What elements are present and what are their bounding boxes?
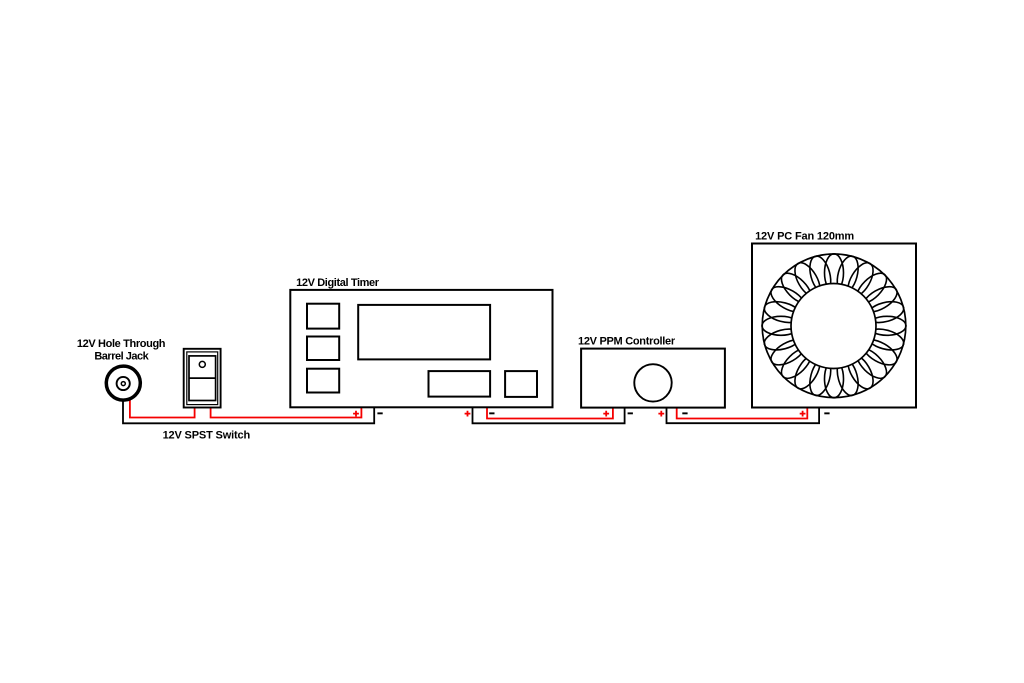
svg-text:12V PC Fan 120mm: 12V PC Fan 120mm [755, 230, 854, 242]
svg-text:12V Digital Timer: 12V Digital Timer [296, 277, 380, 289]
svg-text:12V Hole Through: 12V Hole Through [77, 338, 166, 350]
svg-text:12V PPM Controller: 12V PPM Controller [578, 336, 676, 348]
svg-text:12V SPST Switch: 12V SPST Switch [163, 429, 251, 441]
svg-text:Barrel Jack: Barrel Jack [94, 351, 149, 363]
